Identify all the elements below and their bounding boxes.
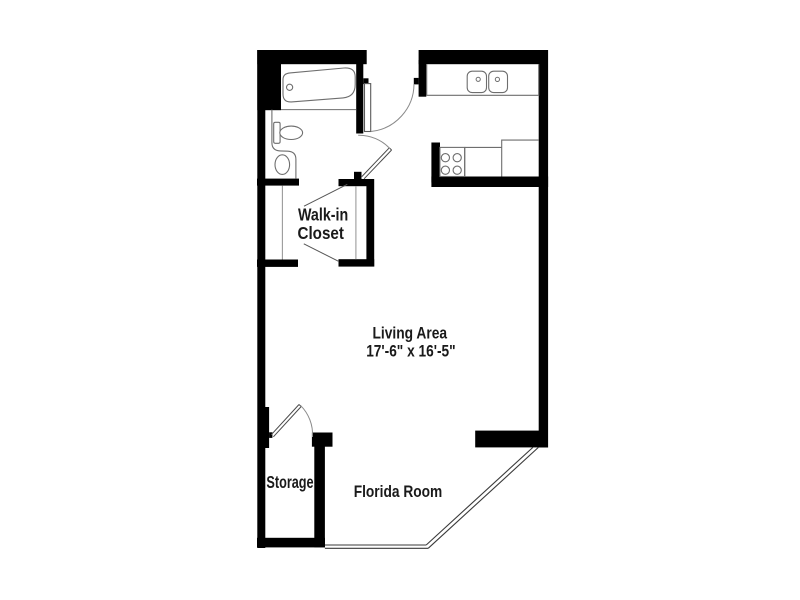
svg-text:Walk-in: Walk-in bbox=[298, 205, 348, 225]
svg-text:17'-6" x 16'-5": 17'-6" x 16'-5" bbox=[366, 343, 455, 361]
svg-text:Living Area: Living Area bbox=[373, 324, 448, 342]
svg-text:Storage: Storage bbox=[266, 472, 313, 492]
svg-text:Closet: Closet bbox=[298, 223, 345, 243]
svg-text:Florida Room: Florida Room bbox=[354, 483, 443, 501]
